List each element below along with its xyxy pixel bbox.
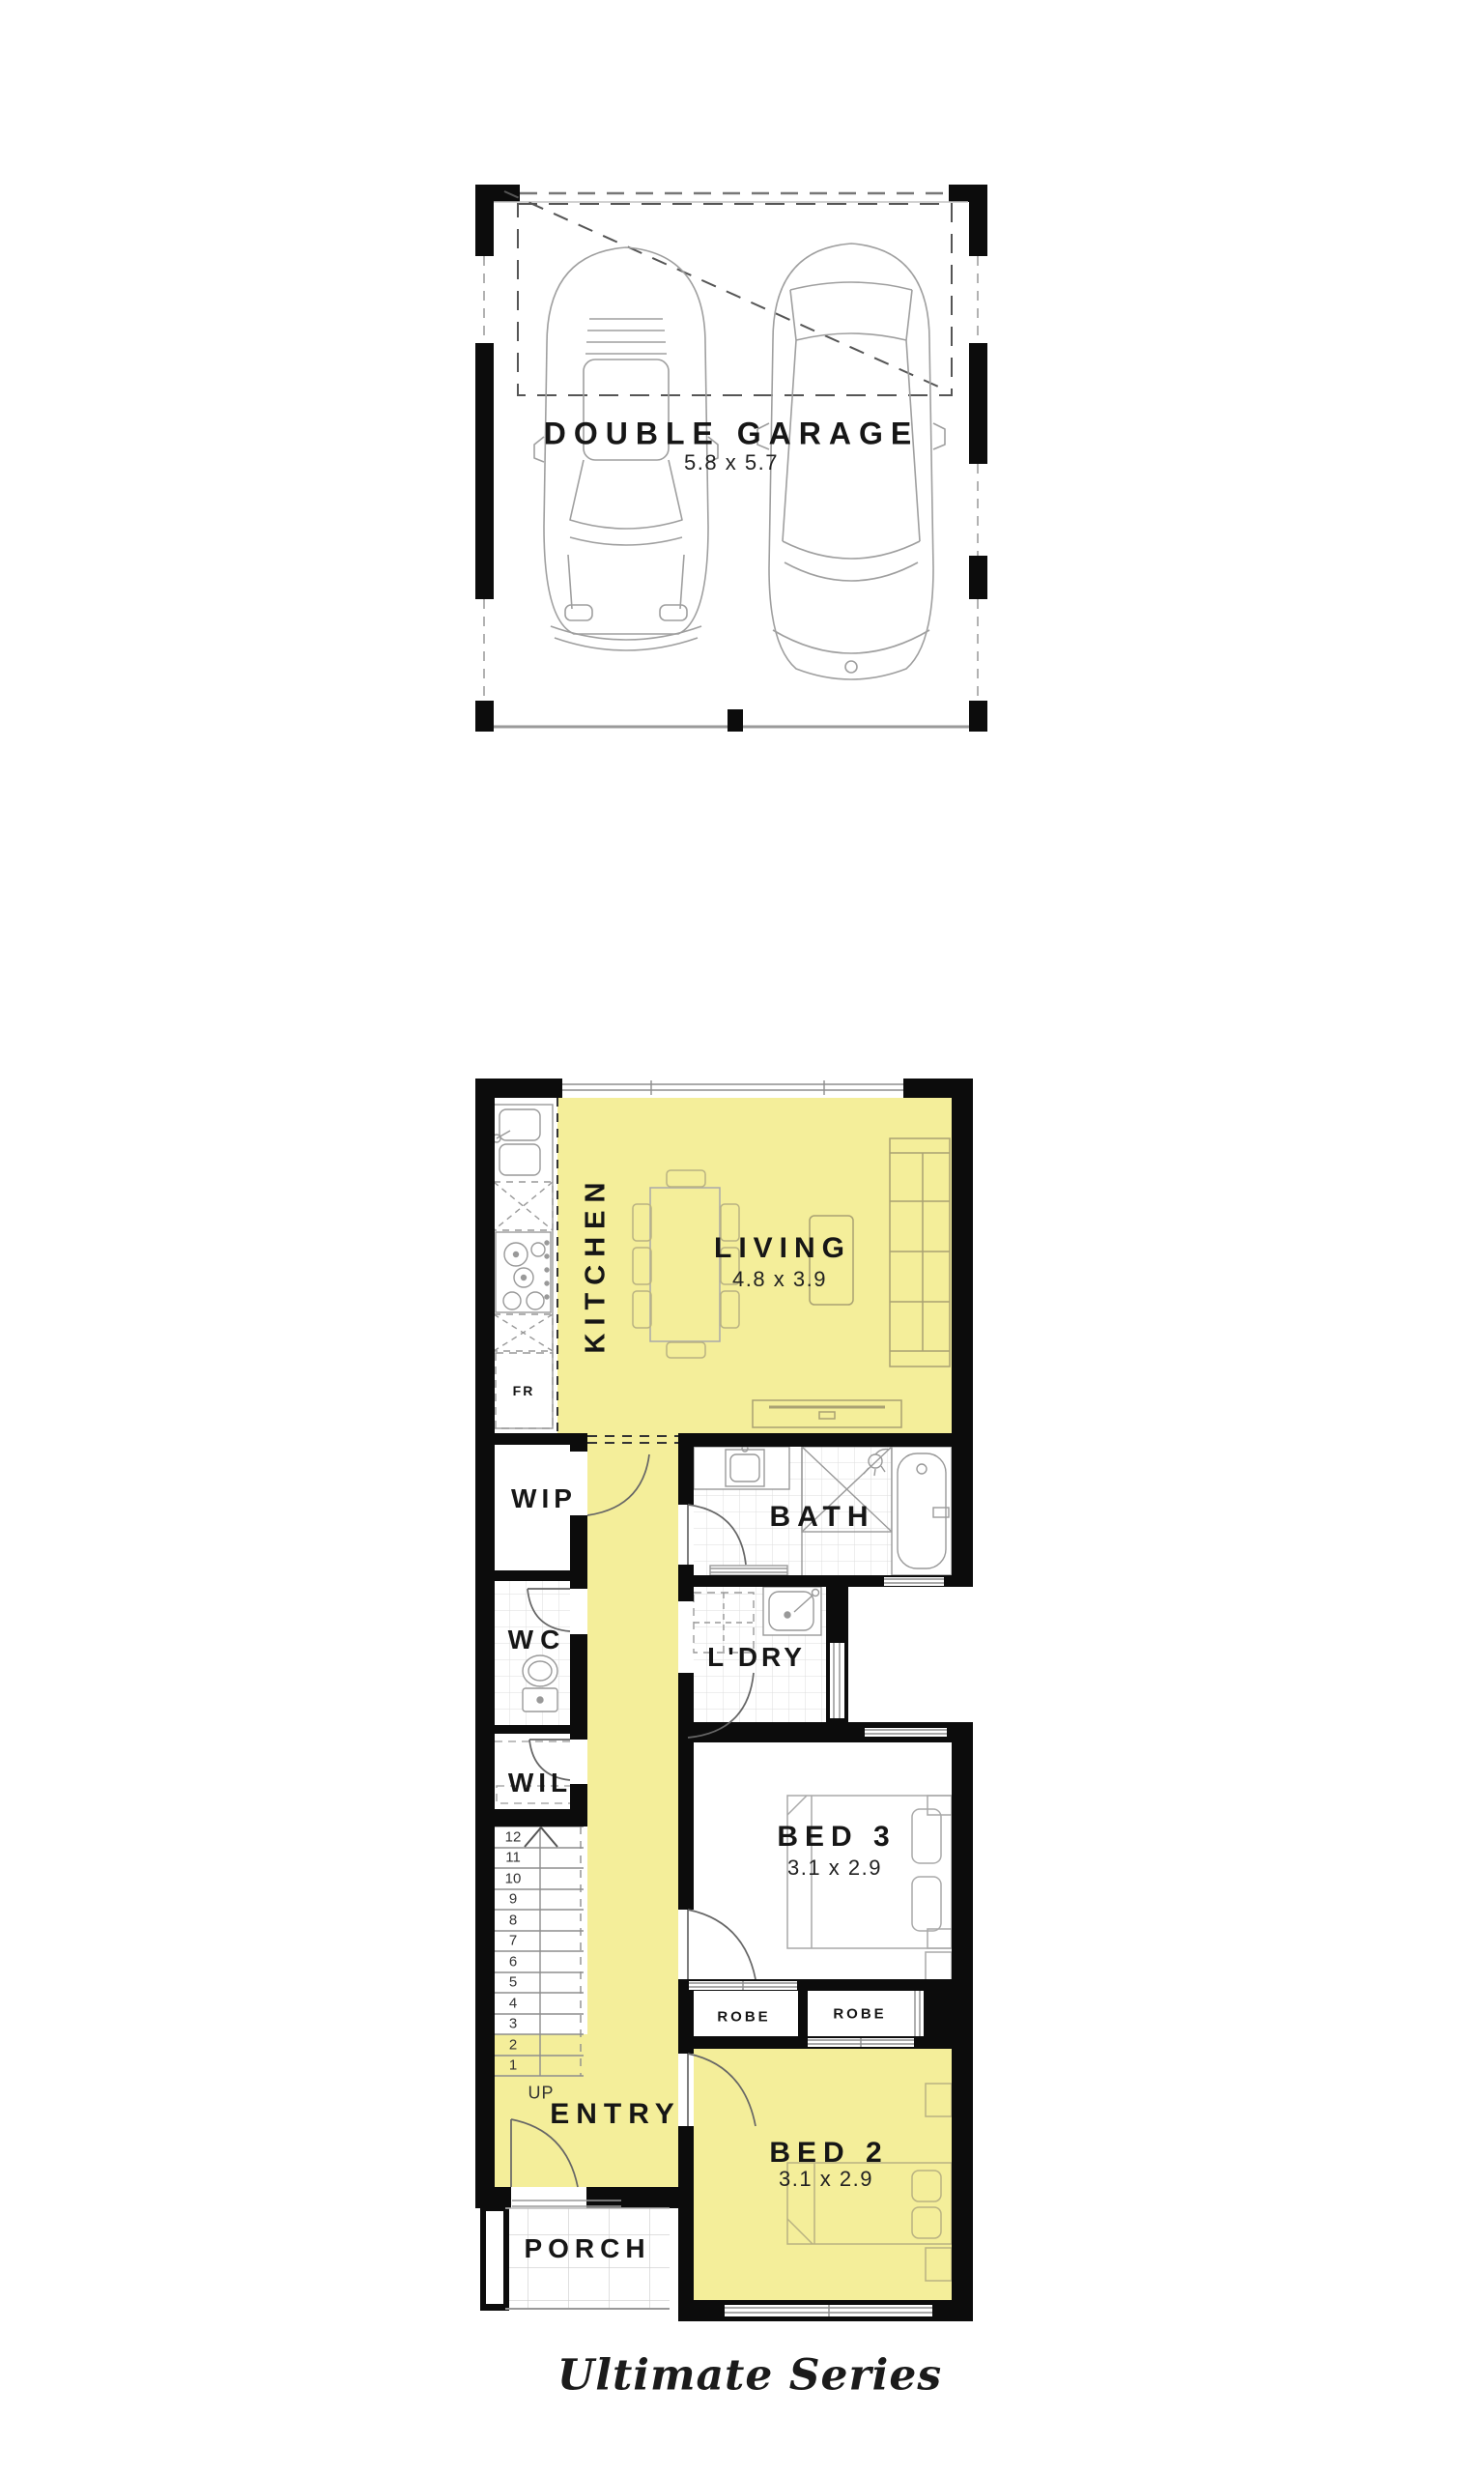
porch-label: PORCH	[524, 2233, 650, 2264]
bed2-dims: 3.1 x 2.9	[779, 2167, 873, 2192]
garage-dims: 5.8 x 5.7	[684, 450, 779, 475]
stair-step-9: 9	[509, 1891, 517, 1908]
ldry-label: L'DRY	[707, 1642, 806, 1673]
stair-step-12: 12	[505, 1829, 522, 1846]
stair-step-7: 7	[509, 1933, 517, 1949]
wil-label: WIL	[508, 1768, 572, 1798]
bathtub	[892, 1447, 952, 1575]
bed3-dims: 3.1 x 2.9	[787, 1855, 882, 1881]
floorplan-page: DOUBLE GARAGE 5.8 x 5.7 KITCHEN LIVING 4…	[0, 0, 1484, 2474]
bed2-label: BED 2	[769, 2137, 888, 2170]
stair-step-2: 2	[509, 2037, 517, 2054]
living-label: LIVING	[714, 1232, 851, 1265]
stair-step-8: 8	[509, 1913, 517, 1929]
stair-step-1: 1	[509, 2057, 517, 2074]
car-sedan-icon	[757, 244, 945, 679]
robe1-label: ROBE	[717, 2009, 770, 2026]
fridge-label: FR	[513, 1383, 535, 1398]
stair-step-4: 4	[509, 1996, 517, 2012]
bed3-door	[688, 1910, 756, 1979]
wc-label: WC	[508, 1625, 567, 1655]
bath-label: BATH	[769, 1501, 874, 1534]
kitchen-label: KITCHEN	[581, 1175, 613, 1354]
stair-step-11: 11	[505, 1850, 521, 1866]
highlight-hall	[587, 1433, 678, 2076]
living-dims: 4.8 x 3.9	[732, 1267, 827, 1292]
stair-step-6: 6	[509, 1954, 517, 1971]
stair-step-10: 10	[505, 1871, 522, 1887]
robe2-label: ROBE	[833, 2006, 886, 2023]
garage-roller-door-dashed	[504, 191, 952, 395]
stair-step-3: 3	[509, 2016, 517, 2032]
stairs-up-label: UP	[528, 2084, 554, 2104]
garage-title: DOUBLE GARAGE	[544, 417, 919, 452]
stair-step-5: 5	[509, 1974, 517, 1991]
highlight-kitchen-living	[557, 1098, 952, 1433]
series-title: Ultimate Series	[557, 2351, 942, 2401]
wip-label: WIP	[511, 1483, 577, 1514]
entry-label: ENTRY	[550, 2098, 681, 2131]
highlight-entry	[495, 2076, 678, 2187]
bath-mat	[710, 1566, 787, 1575]
bed3-label: BED 3	[777, 1821, 896, 1854]
